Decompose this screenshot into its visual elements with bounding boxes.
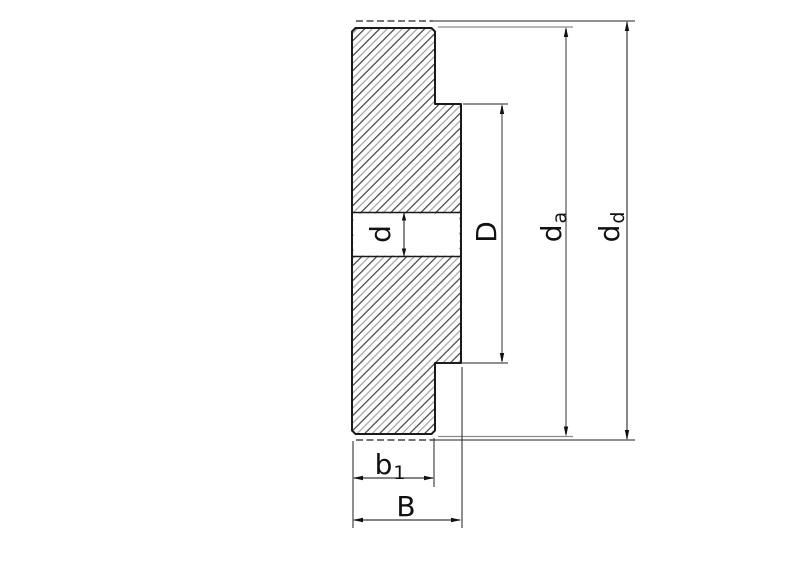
- arrow-b1-right: [424, 476, 434, 480]
- label-dd-subscript: d: [607, 212, 629, 224]
- label-dd-diameter: dd: [593, 212, 629, 243]
- label-rim-width: b1: [375, 448, 406, 484]
- label-bore-diameter: d: [364, 225, 397, 243]
- label-b1-base: b: [375, 448, 393, 481]
- arrow-B-right: [451, 518, 461, 522]
- arrow-dd-up: [625, 21, 629, 31]
- technical-drawing-page: d D da dd b1 B: [0, 0, 800, 565]
- label-B-base: B: [396, 490, 415, 523]
- label-total-width: B: [396, 490, 415, 523]
- arrow-D-down: [500, 353, 504, 363]
- arrow-B-left: [353, 518, 363, 522]
- gear-section-drawing: d D da dd b1 B: [0, 0, 800, 565]
- label-da-diameter: da: [535, 212, 571, 242]
- label-dd-base: d: [593, 225, 626, 243]
- label-step-diameter: D: [470, 221, 503, 243]
- arrow-dd-down: [625, 430, 629, 440]
- label-da-base: d: [535, 224, 568, 242]
- label-b1-subscript: 1: [393, 462, 405, 484]
- label-D-base: D: [470, 221, 503, 243]
- label-da-subscript: a: [549, 212, 571, 224]
- arrow-D-up: [500, 104, 504, 114]
- arrow-da-up: [564, 27, 568, 37]
- arrow-b1-left: [353, 476, 363, 480]
- label-bore-base: d: [364, 225, 397, 243]
- arrow-da-down: [564, 427, 568, 437]
